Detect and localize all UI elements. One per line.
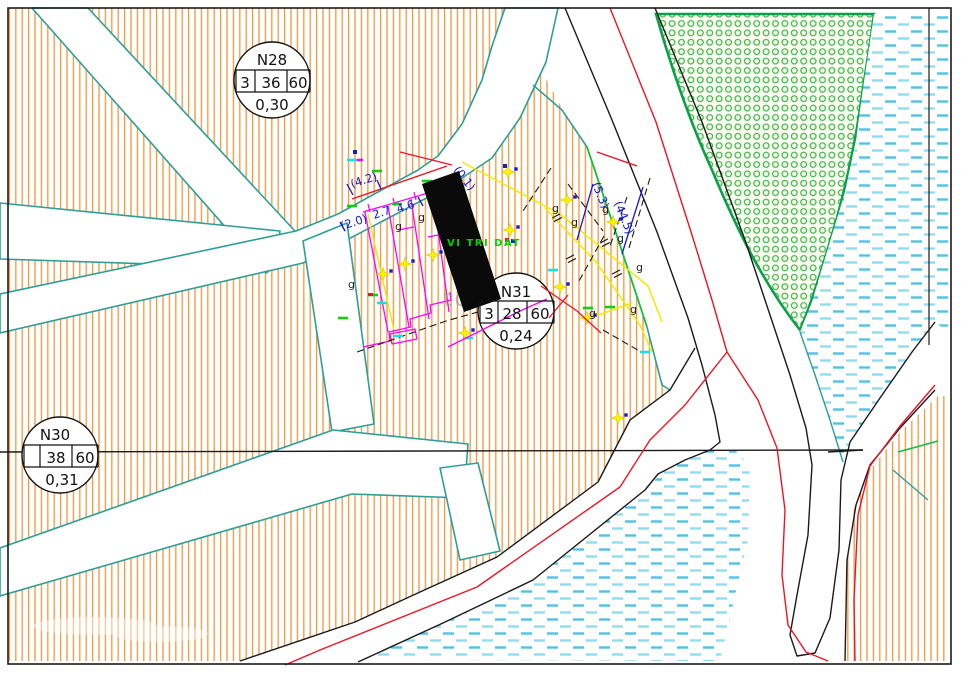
survey-dot-blue (471, 328, 474, 331)
utility-letter-g: g (571, 216, 578, 229)
parcel-cell: 3 (484, 305, 494, 323)
parcel-coefficient: 0,30 (255, 96, 288, 114)
parcel-cell: 60 (530, 305, 549, 323)
utility-letter-g: g (348, 278, 355, 291)
survey-dot-blue (516, 225, 519, 228)
map-canvas: gggggggggg (4.2) (2.0) 2.7 4.6 (0.1) (5.… (0, 0, 961, 679)
survey-dot-blue (624, 413, 627, 416)
parcel-label-circle-n28: N28 3 36 60 0,30 (234, 42, 310, 118)
survey-dot-navy (503, 164, 507, 168)
parcel-label-circle-n30: N30 38 60 0,31 (22, 417, 98, 493)
parcel-cell: 38 (46, 449, 65, 467)
parcel-cell: 60 (75, 449, 94, 467)
parcel-name: N31 (501, 283, 531, 301)
parcel-coefficient: 0,24 (499, 327, 532, 345)
red-survey-dot (368, 293, 373, 296)
survey-dot-blue (389, 269, 392, 272)
utility-letter-g: g (630, 303, 637, 316)
parcel-name: N28 (257, 51, 287, 69)
parcel-cell: 3 (240, 74, 250, 92)
utility-letter-g: g (589, 307, 596, 320)
parcel-name: N30 (40, 426, 70, 444)
parcel-coefficient: 0,31 (45, 471, 78, 489)
survey-dot-blue (411, 259, 414, 262)
survey-dot-blue (514, 167, 517, 170)
parcel-cell: 28 (502, 305, 521, 323)
utility-letter-g: g (395, 220, 402, 233)
survey-dot-blue (573, 195, 576, 198)
utility-letter-g: g (636, 261, 643, 274)
parcel-cell: 60 (288, 74, 307, 92)
utility-letter-g: g (552, 202, 559, 215)
parcel-cell: 36 (261, 74, 280, 92)
site-location-label: VI TRI DAT (447, 238, 521, 249)
planning-map-drawing: gggggggggg (4.2) (2.0) 2.7 4.6 (0.1) (5.… (0, 0, 961, 679)
survey-dot-blue (566, 282, 569, 285)
utility-letter-g: g (418, 211, 425, 224)
residential-parcel-area-southeast (845, 396, 949, 661)
utility-letter-g: g (617, 232, 624, 245)
survey-dot-blue (439, 250, 442, 253)
survey-dot-navy (353, 150, 357, 154)
